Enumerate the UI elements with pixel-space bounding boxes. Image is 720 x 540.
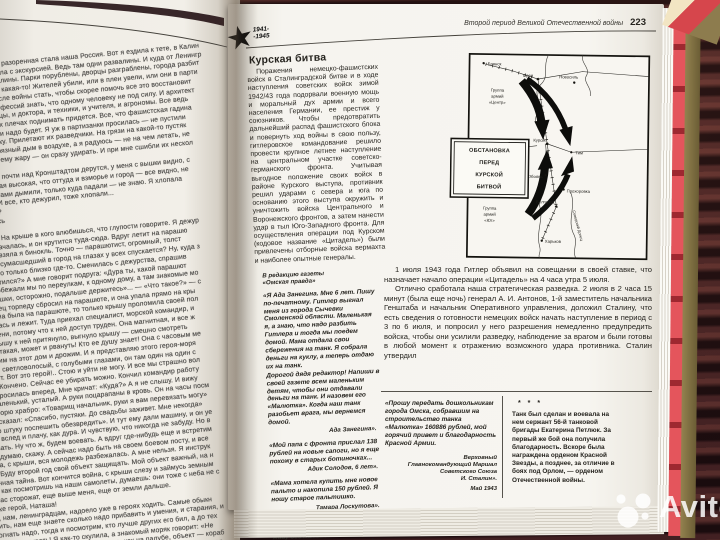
kursk-map: Брянск Орел Новосиль Курск Тим Обоянь Пр… xyxy=(449,50,654,267)
running-header: Второй период Великой Отечественной войн… xyxy=(464,17,646,28)
svg-text:Группа: Группа xyxy=(491,88,505,93)
svg-text:армий: армий xyxy=(483,212,496,217)
years-bottom: -1945 xyxy=(253,33,270,42)
map-label-prokhorovka: Прохоровка xyxy=(567,189,591,194)
stalin-signature-line: И. Сталин». xyxy=(385,476,497,483)
right-column: 1 июля 1943 года Гитлер объявил на совещ… xyxy=(384,265,652,360)
map-label-belgorod: Белгород xyxy=(536,199,555,204)
letter-1-paragraph-2: Дорогой дядя редактор! Напиши в своей га… xyxy=(266,368,382,428)
svg-text:ОБСТАНОВКА: ОБСТАНОВКА xyxy=(469,148,510,155)
svg-text:Группа: Группа xyxy=(483,206,497,211)
horizontal-rule xyxy=(381,391,652,392)
letter-1-signature: Ада Занегина». xyxy=(268,425,376,437)
tank-note-body: Танк был сделан и воевала на нем сержант… xyxy=(512,411,618,485)
stalin-signature-line: Советского Союза xyxy=(385,469,497,476)
map-label-kharkov: Харьков xyxy=(545,239,562,244)
section-separator: * * * xyxy=(518,400,618,407)
stalin-letter: «Прошу передать дошкольникам города Омск… xyxy=(385,400,499,492)
stalin-signature-line: Верховный xyxy=(385,455,497,462)
letter-3-paragraph: «Мама хотела купить мне новое пальто и н… xyxy=(271,476,386,504)
right-column-paragraph-2: Отлично сработала наша стратегическая ра… xyxy=(384,284,652,360)
article-title: Курская битва xyxy=(249,51,327,66)
stalin-signature-line: Главнокомандующий Маршал xyxy=(385,462,497,469)
page-stack-bottom xyxy=(234,506,664,538)
map-label-kursk: Курск xyxy=(533,138,544,143)
map-label-tim: Тим xyxy=(575,150,583,155)
svg-text:армий: армий xyxy=(491,94,504,99)
right-page: Второй период Великой Отечественной войн… xyxy=(228,4,664,510)
left-page: все думала, какая разоренная стала наша … xyxy=(0,0,240,540)
book-photo: все думала, какая разоренная стала наша … xyxy=(0,0,720,540)
svg-text:«Юг»: «Юг» xyxy=(484,218,495,223)
letter-2-signature: Адик Солодов, 6 лет». xyxy=(270,463,378,475)
svg-text:ПЕРЕД: ПЕРЕД xyxy=(479,160,499,166)
star-icon: ★ xyxy=(223,19,257,56)
running-header-title: Второй период Великой Отечественной войн… xyxy=(464,20,623,27)
letter-2-paragraph: «Мой папа с фронта прислал 138 рублей на… xyxy=(269,438,384,466)
intro-paragraph: Поражения немецко-фашистских войск в Ста… xyxy=(247,64,386,266)
avito-watermark: Avito xyxy=(612,484,720,530)
map-label-novosil: Новосиль xyxy=(559,74,579,79)
map-caption-box: ОБСТАНОВКА ПЕРЕД КУРСКОЙ БИТВОЙ xyxy=(450,138,529,198)
left-page-text: все думала, какая разоренная стала наша … xyxy=(0,37,240,540)
letters-block: В редакцию газеты «Омская правда» «Я Ада… xyxy=(255,268,388,540)
map-label-bryansk: Брянск xyxy=(488,61,502,66)
stalin-letter-body: «Прошу передать дошкольникам города Омск… xyxy=(385,400,499,448)
avito-watermark-text: Avito xyxy=(659,489,720,525)
svg-text:«Центр»: «Центр» xyxy=(489,100,506,105)
stalin-letter-date: Май 1943 xyxy=(385,486,497,492)
middle-column: Поражения немецко-фашистских войск в Ста… xyxy=(247,64,399,540)
right-column-paragraph-1: 1 июля 1943 года Гитлер объявил на совещ… xyxy=(384,265,652,284)
column-divider xyxy=(502,396,503,498)
page-number: 223 xyxy=(630,17,646,28)
years-badge: 1941- -1945 xyxy=(253,25,270,41)
map-label-oboyan: Обоянь xyxy=(528,174,544,179)
avito-logo-icon xyxy=(612,484,654,530)
letter-1-paragraph-1: «Я Ада Занегина. Мне 6 лет. Пишу по-печа… xyxy=(263,288,380,372)
tank-note: * * * Танк был сделан и воевала на нем с… xyxy=(512,400,618,485)
map-label-orel: Орел xyxy=(523,73,534,78)
